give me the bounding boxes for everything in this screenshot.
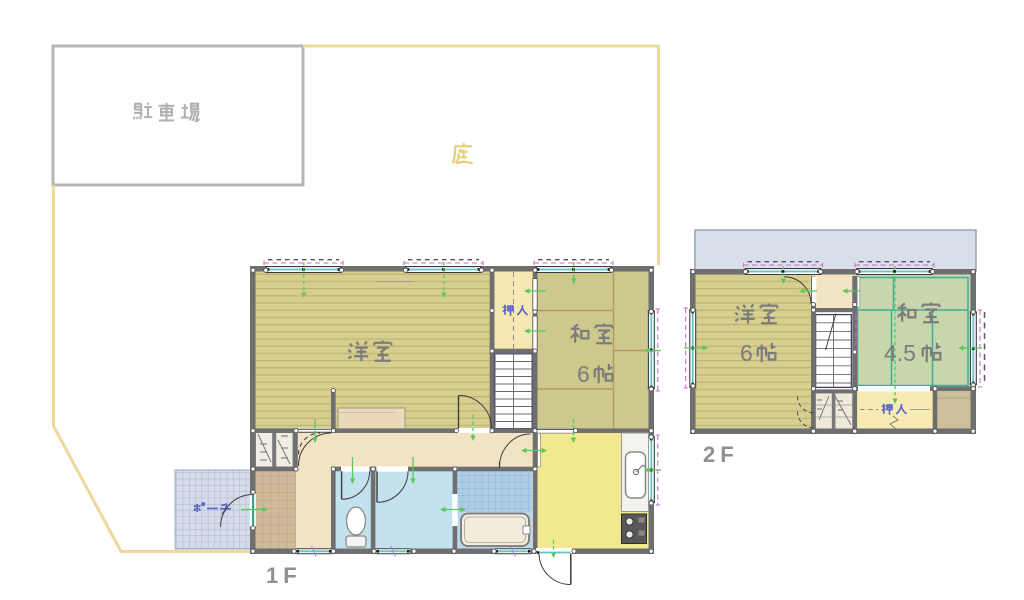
svg-text:4.5: 4.5 xyxy=(884,340,916,366)
svg-text:2F: 2F xyxy=(703,442,739,467)
svg-text:1F: 1F xyxy=(266,563,302,588)
svg-text:6: 6 xyxy=(577,361,590,387)
svg-text:6: 6 xyxy=(740,340,753,366)
